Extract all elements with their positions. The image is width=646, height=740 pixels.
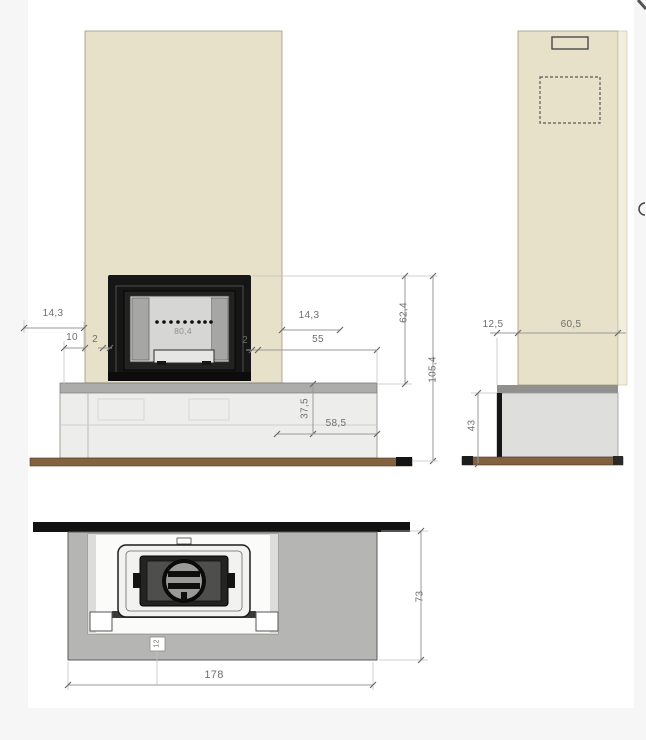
dim-front-insert-height: 62,4 <box>398 295 411 331</box>
dim-front-bench-right-width: 55 <box>300 333 336 346</box>
plan-view <box>33 522 428 690</box>
fireplace-insert-plan <box>118 538 250 617</box>
floor-strip-side <box>462 457 623 465</box>
damper-stub <box>181 592 187 601</box>
insert-foot-left <box>157 361 166 365</box>
right-edge-glyph-artifact <box>639 203 645 215</box>
dim-front-bench-right-depth: 58,5 <box>316 417 356 430</box>
bench-top-slab-side <box>497 385 618 393</box>
pedestal-left-plan <box>90 612 112 631</box>
floor-strip-front <box>30 458 412 466</box>
insert-bottom-sill <box>108 372 251 381</box>
glass-side-pillar-left <box>132 298 149 360</box>
chimney-breast-side <box>518 31 618 385</box>
dim-plan-total-depth: 73 <box>414 585 427 609</box>
wall-bar-plan <box>33 522 410 532</box>
dim-front-gap-left: 2 <box>89 333 101 346</box>
insert-top-notch-plan <box>177 538 191 544</box>
corner-artifact-mark <box>638 0 646 9</box>
dim-front-right-offset: 14,3 <box>283 309 335 322</box>
dim-insert-width: 80,4 <box>162 325 204 338</box>
dim-front-total-height: 105,4 <box>427 349 440 391</box>
dim-front-left-offset: 14,3 <box>27 307 79 320</box>
dim-front-plinth-side: 10 <box>59 331 85 344</box>
dim-side-bench-height: 43 <box>466 415 479 437</box>
dim-front-bench-tier-height: 37,5 <box>299 391 312 427</box>
hinge-right-plan <box>228 573 235 588</box>
vent-dots-row <box>155 320 213 324</box>
damper-bar-mid <box>168 583 200 589</box>
insert-foot-right <box>202 361 211 365</box>
hinge-left-plan <box>133 573 140 588</box>
bench-top-slab-front <box>60 383 377 393</box>
floor-cap-side-left <box>462 456 473 465</box>
dim-side-bench-overhang: 12,5 <box>478 318 508 331</box>
bench-body-side <box>497 393 618 457</box>
damper-bar-top <box>168 571 200 577</box>
bench-front-edge-strip <box>497 393 502 457</box>
front-elevation-view <box>21 31 438 466</box>
dim-front-gap-right: 2 <box>239 334 251 347</box>
dim-side-column-depth: 60,5 <box>554 318 588 331</box>
fireplace-technical-drawing <box>0 0 646 740</box>
floor-cap-side-right <box>613 456 623 465</box>
dim-plan-hearth-detail: 12 <box>153 637 162 651</box>
side-elevation-view <box>462 31 627 467</box>
pedestal-right-plan <box>256 612 278 631</box>
floor-end-cap-front <box>396 457 412 466</box>
dim-plan-total-width: 178 <box>196 669 232 682</box>
